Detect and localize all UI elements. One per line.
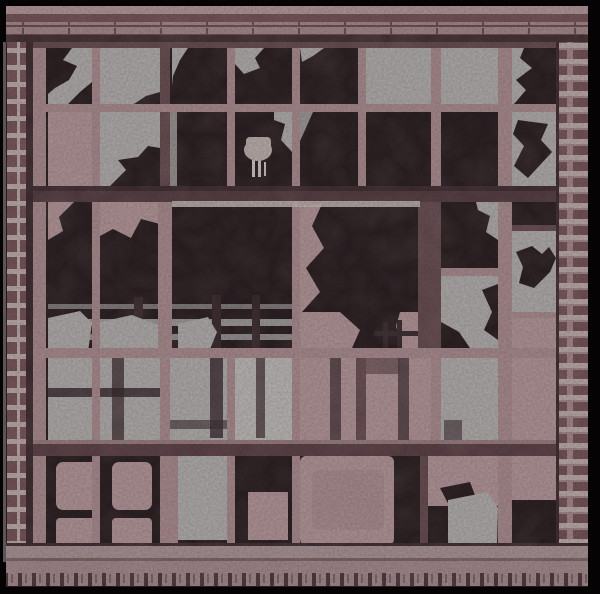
dark-grain [6, 6, 588, 587]
frame-edge-left [0, 0, 3, 594]
frame-edge-top [0, 0, 600, 6]
grain-texture [6, 6, 588, 587]
photo-canvas: Broken windows of an abandoned factory —… [0, 0, 600, 594]
frame-edge-bottom [0, 588, 600, 594]
photo-broken-factory-window: Broken windows of an abandoned factory —… [0, 0, 600, 594]
frame-edge-right [588, 0, 600, 594]
edge-highlight-left [3, 42, 6, 562]
